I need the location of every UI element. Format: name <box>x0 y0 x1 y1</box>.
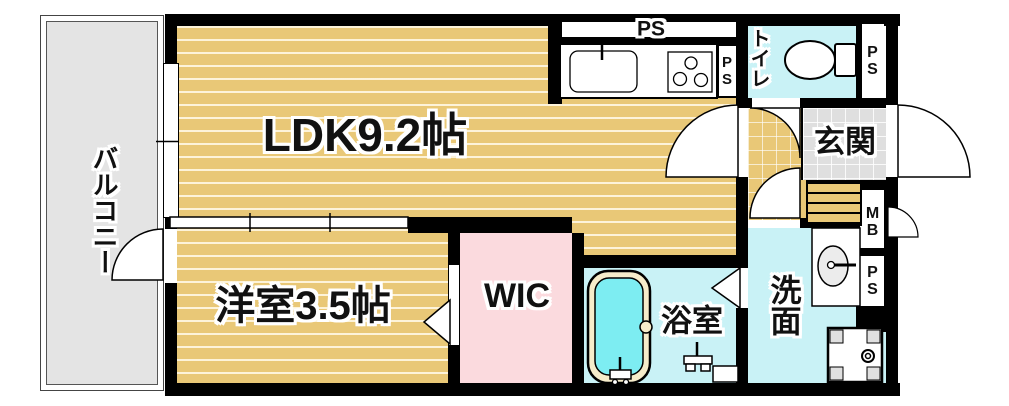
entrance-label: 玄関 <box>814 127 876 158</box>
ps-toilet-label: PS <box>864 44 880 78</box>
floor-plan: バルコニー LDK9.2帖 洋室3.5帖 WIC 浴室 洗面 玄関 トイレ PS… <box>0 0 1009 406</box>
toilet-label: トイレ <box>748 28 768 88</box>
ps-top-label: PS <box>637 19 665 40</box>
front-door-swing <box>898 105 970 177</box>
meter-box-door-swing <box>888 207 918 237</box>
washroom-label: 洗面 <box>768 274 799 336</box>
ps-washroom-label: PS <box>864 264 880 298</box>
western-room-label: 洋室3.5帖 <box>215 286 391 326</box>
bathtub <box>588 271 652 385</box>
sliding-partition <box>170 213 408 232</box>
vanity-sink <box>812 228 860 306</box>
fixtures-layer <box>0 0 1009 406</box>
washroom-door-swing <box>750 168 800 218</box>
ps-kitchen-label: PS <box>720 54 735 88</box>
balcony-door-swing <box>112 229 163 280</box>
washing-machine-pan <box>828 328 882 382</box>
mb-label: MB <box>864 205 880 239</box>
ldk-door-swing <box>666 105 738 177</box>
bathroom-label: 浴室 <box>661 306 723 337</box>
shower-mixer <box>684 342 712 371</box>
kitchen-counter <box>560 44 717 98</box>
bath-door-marker <box>712 268 740 308</box>
drain <box>862 350 874 362</box>
toilet-door-swing <box>750 108 800 158</box>
wic-door-marker <box>424 300 450 344</box>
ldk-label: LDK9.2帖 <box>263 112 467 158</box>
wic-label: WIC <box>484 279 550 313</box>
balcony-label: バルコニー <box>91 145 117 275</box>
bath-counter <box>713 366 738 382</box>
toilet-fixture <box>785 41 856 79</box>
kitchen-sink <box>570 51 637 92</box>
